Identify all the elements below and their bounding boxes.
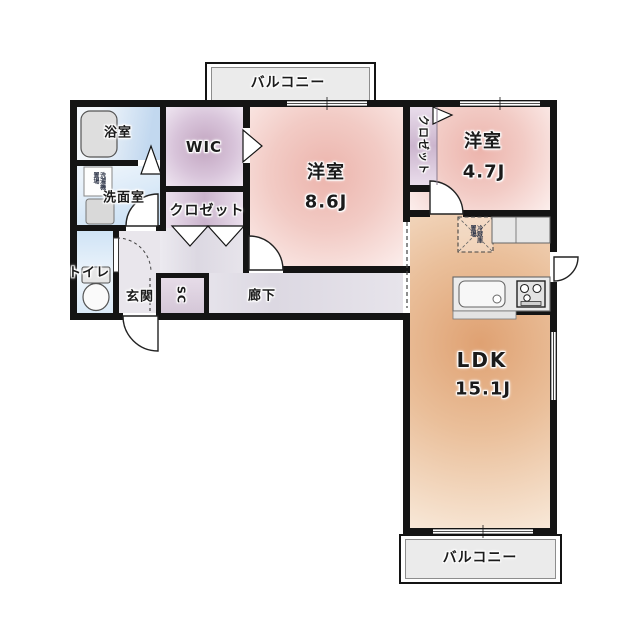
shoe-closet-label: SC (175, 286, 188, 304)
washer-label: 洗濯機 置場 (91, 172, 104, 190)
ldk-size: 15.1J (455, 379, 511, 400)
hallway-label: 廊下 (248, 285, 276, 304)
bedroom2-closet-label: クロゼット (416, 115, 432, 175)
bath-label: 浴室 (104, 122, 132, 141)
wic-label: WIC (186, 138, 222, 156)
bedroom2-size: 4.7J (463, 162, 506, 183)
washroom-label: 洗面室 (103, 187, 145, 206)
toilet-label: トイレ (68, 262, 110, 281)
bedroom1-name: 洋室 (307, 158, 345, 184)
refrigerator-label: 冷蔵庫 置場 (468, 225, 481, 243)
bedroom1-size: 8.6J (305, 192, 348, 213)
bedroom2-name: 洋室 (464, 127, 502, 153)
hall-closet-label: クロゼット (170, 200, 245, 220)
floor-plan: バルコニー 浴室 WIC 洋室 8.6J 洋室 4.7J クロゼット 洗面室 ク… (0, 0, 640, 640)
balcony-bottom-label: バルコニー (443, 547, 518, 567)
ldk-name: LDK (457, 348, 508, 372)
balcony-top-label: バルコニー (251, 72, 326, 92)
entrance-label: 玄関 (126, 286, 154, 305)
labels: バルコニー 浴室 WIC 洋室 8.6J 洋室 4.7J クロゼット 洗面室 ク… (0, 0, 640, 640)
